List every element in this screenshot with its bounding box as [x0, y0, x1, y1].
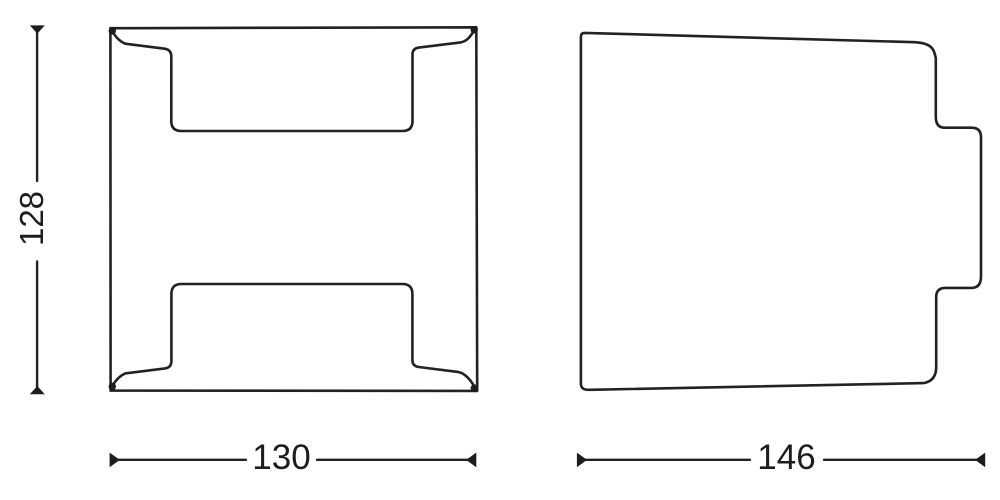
svg-text:128: 128	[13, 191, 50, 246]
svg-text:146: 146	[757, 438, 815, 477]
svg-text:130: 130	[252, 438, 310, 477]
